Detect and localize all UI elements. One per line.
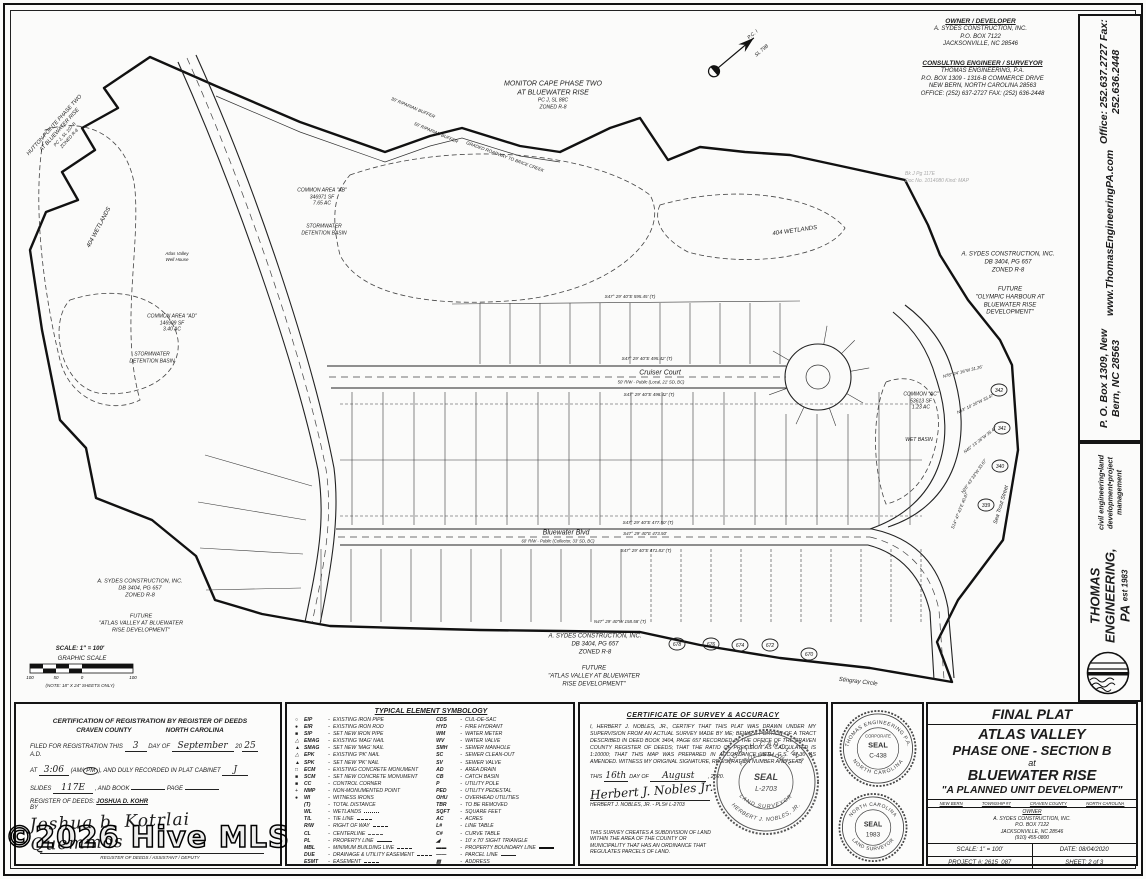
legend-symbol: ▲	[295, 760, 304, 767]
legend-desc: WETLANDS	[333, 809, 361, 816]
legend-desc: PROPERTY BOUNDARY LINE	[465, 845, 536, 852]
legend-desc: EXISTING IRON PIPE	[333, 717, 384, 724]
legend-entry: ▨-ADDRESS	[436, 859, 567, 866]
bluewater-rw-label: 60' R/W - Public (Collector, 33' SD, BC)	[521, 538, 594, 543]
future-atlas-label-left: FUTURE"ATLAS VALLEY AT BLUEWATERRISE DEV…	[99, 613, 183, 634]
certificate-footer: THIS SURVEY CREATES A SUBDIVISION OF LAN…	[590, 830, 720, 856]
legend-abbr: WV	[436, 738, 457, 745]
common-ac-label: COMMON "AC"53613 SF1.23 AC	[903, 391, 938, 411]
legend-desc: SEWER VALVE	[465, 760, 501, 767]
legend-abbr: SMAG	[304, 745, 325, 752]
legend-abbr: EIR	[304, 724, 325, 731]
legend-symbol: ■	[295, 781, 304, 788]
legend-abbr: DUE	[304, 852, 325, 859]
sydes-parcel-label-right: A. SYDES CONSTRUCTION, INC.DB 3404, PG 6…	[961, 251, 1054, 274]
parcel-line	[841, 340, 854, 353]
legend-abbr: SPK	[304, 760, 325, 767]
legend-separator: -	[325, 859, 333, 866]
legend-desc: WATER METER	[465, 731, 502, 738]
legend-separator: -	[457, 788, 465, 795]
legend-separator: -	[457, 724, 465, 731]
legend-separator: -	[457, 831, 465, 838]
legend-desc: RIGHT OF WAY	[333, 823, 370, 830]
symbology-legend-block: TYPICAL ELEMENT SYMBOLOGY ○EIP-EXISTING …	[285, 702, 575, 866]
lot-number: 339	[982, 503, 991, 509]
cruiser-bearing-top: S47° 29' 40"E 495.42' (T)	[622, 356, 673, 362]
registration-recorded-line: AT 3:06 (AM/PM), AND DULY RECORDED IN PL…	[30, 765, 270, 776]
legend-entry: ○EIP-EXISTING IRON PIPE	[295, 717, 432, 724]
title-block: FINAL PLAT ATLAS VALLEY PHASE ONE - SECT…	[926, 702, 1138, 866]
legend-separator: -	[325, 781, 333, 788]
legend-desc: LINE TABLE	[465, 823, 494, 830]
legend-desc: TIE LINE	[333, 816, 354, 823]
legend-abbr: ▬▬	[436, 845, 457, 852]
legend-abbr: CDS	[436, 717, 457, 724]
legend-desc: EXISTING CONCRETE MONUMENT	[333, 767, 418, 774]
legend-title: TYPICAL ELEMENT SYMBOLOGY	[295, 708, 567, 715]
curve-bearing-label: N63° 10' 20"W 33.47'	[956, 392, 995, 414]
legend-separator: -	[457, 731, 465, 738]
cul-de-sac	[785, 344, 851, 410]
parcel-line	[205, 455, 312, 486]
legend-desc: EASEMENT	[333, 859, 361, 866]
legend-desc: CATCH BASIN	[465, 774, 499, 781]
future-olympic-label: FUTURE"OLYMPIC HARBOUR AT BLUEWATER RISE…	[976, 286, 1045, 317]
legend-line-sample	[397, 848, 412, 849]
legend-desc: SET NEW CONCRETE MONUMENT	[333, 774, 418, 781]
legend-symbol: ■	[295, 731, 304, 738]
cruiser-rw-label: 50' R/W - Public (Local, 21' SD, BC)	[618, 379, 685, 384]
registration-title: CERTIFICATION OF REGISTRATION BY REGISTE…	[30, 718, 270, 725]
legend-entry: TBR-TO BE REMOVED	[436, 802, 567, 809]
legend-separator: -	[457, 717, 465, 724]
legend-entry: T/L-TIE LINE	[295, 816, 432, 823]
legend-entry: △EPK-EXISTING 'PK' NAIL	[295, 752, 432, 759]
legend-entry: WL-WETLANDS	[295, 809, 432, 816]
graphic-scale-caption: GRAPHIC SCALE	[58, 656, 107, 664]
legend-abbr: L#	[436, 823, 457, 830]
legend-separator: -	[457, 859, 465, 866]
legend-separator: -	[325, 809, 333, 816]
legend-entry: AD-AREA DRAIN	[436, 767, 567, 774]
legend-entry: ■CC-CONTROL CORNER	[295, 781, 432, 788]
legend-desc: MINIMUM BUILDING LINE	[333, 845, 394, 852]
svg-text:NORTH CAROLINA: NORTH CAROLINA	[848, 802, 898, 819]
consulting-engineer-block: CONSULTING ENGINEER / SURVEYOR THOMAS EN…	[880, 60, 1085, 98]
title-name-2: PHASE ONE - SECTION B	[928, 743, 1136, 758]
legend-separator: -	[325, 774, 333, 781]
sidebar-firm-box: THOMAS ENGINEERING, PA est 1983 civil en…	[1078, 442, 1142, 702]
legend-abbr: EIP	[304, 717, 325, 724]
legend-desc: UTILITY POLE	[465, 781, 499, 788]
parcel-line	[206, 588, 301, 590]
legend-symbol: ●	[295, 795, 304, 802]
legend-abbr: CL	[304, 831, 325, 838]
legend-separator: -	[457, 823, 465, 830]
survey-certificate-block: CERTIFICATE OF SURVEY & ACCURACY I, HERB…	[578, 702, 828, 866]
future-atlas-label-bottom: FUTURE"ATLAS VALLEY AT BLUEWATERRISE DEV…	[548, 665, 640, 688]
certificate-title: CERTIFICATE OF SURVEY & ACCURACY	[590, 712, 816, 719]
parcel-line	[200, 548, 303, 554]
legend-line-sample	[373, 826, 388, 827]
plat-sheet: 342341340339678676674672670N78° 24' 16"W…	[0, 0, 1146, 879]
legend-entry: SC-SEWER CLEAN-OUT	[436, 752, 567, 759]
lot-number: 341	[998, 426, 1007, 432]
sidebar-firm-text: THOMAS ENGINEERING, PA est 1983 civil en…	[1080, 444, 1140, 648]
legend-abbr: ESMT	[304, 859, 325, 866]
legend-entry: ●WI-WITNESS IRONS	[295, 795, 432, 802]
title-sheet: SHEET: 2 of 3	[1033, 857, 1137, 869]
legend-abbr: C#	[436, 831, 457, 838]
legend-entry: ▲SMAG-SET NEW 'MAG' NAIL	[295, 745, 432, 752]
sea-trout-road	[888, 305, 961, 527]
firm-tagline: civil engineering•land development•proje…	[1097, 444, 1124, 541]
legend-desc: TO BE REMOVED	[465, 802, 507, 809]
legend-entry: □ECM-EXISTING CONCRETE MONUMENT	[295, 767, 432, 774]
legend-separator: -	[457, 802, 465, 809]
legend-separator: -	[457, 774, 465, 781]
legend-abbr: EPK	[304, 752, 325, 759]
legend-desc: WITNESS IRONS	[333, 795, 374, 802]
top-band-bearing: S47° 29' 40"E 595.45' (T)	[605, 294, 656, 300]
legend-desc: EXISTING IRON ROD	[333, 724, 384, 731]
registration-state: NORTH CAROLINA	[166, 727, 224, 734]
title-name-1: ATLAS VALLEY	[928, 727, 1136, 743]
registration-filed-line: FILED FOR REGISTRATION THIS 3 DAY OF Sep…	[30, 741, 270, 758]
parcel-line	[829, 408, 835, 426]
legend-line-sample	[417, 855, 432, 856]
legend-entry: L#-LINE TABLE	[436, 823, 567, 830]
legend-desc: PARCEL LINE	[465, 852, 498, 859]
legend-entry: +NMP-NON-MONUMENTED POINT	[295, 788, 432, 795]
legend-entry: PL-PROPERTY LINE	[295, 838, 432, 845]
legend-separator: -	[325, 795, 333, 802]
legend-abbr: SV	[436, 760, 457, 767]
legend-entry: P-UTILITY POLE	[436, 781, 567, 788]
stormwater-basin-label-2: STORMWATERDETENTION BASIN	[129, 352, 174, 365]
legend-line-sample	[539, 847, 554, 849]
legend-entry: MBL-MINIMUM BUILDING LINE	[295, 845, 432, 852]
legend-desc: EXISTING 'MAG' NAIL	[333, 738, 384, 745]
legend-desc: WATER VALVE	[465, 738, 500, 745]
legend-desc: NON-MONUMENTED POINT	[333, 788, 400, 795]
legend-symbol: ○	[295, 717, 304, 724]
title-owner-block: OWNER A. SYDES CONSTRUCTION, INC. P.O. B…	[928, 808, 1136, 844]
legend-abbr: CB	[436, 774, 457, 781]
legend-abbr: ▨	[436, 859, 457, 866]
legend-abbr: SIP	[304, 731, 325, 738]
legend-desc: DRAINAGE & UTILITY EASEMENT	[333, 852, 414, 859]
legend-desc: SET NEW 'MAG' NAIL	[333, 745, 384, 752]
lot-number: 670	[805, 652, 814, 658]
legend-abbr: T/L	[304, 816, 325, 823]
well-house-label: Atlas ValleyWell House	[165, 251, 188, 263]
wet-basin-label: WET BASIN	[905, 437, 933, 444]
legend-abbr: SQFT	[436, 809, 457, 816]
scale-note: (NOTE: 18" X 24" SHEETS ONLY)	[45, 683, 114, 689]
legend-line-sample	[364, 812, 379, 813]
scale-tick-label: 100	[26, 675, 34, 680]
parcel-line	[847, 394, 863, 404]
legend-separator: -	[457, 760, 465, 767]
bluewater-bearing-bottom: S47° 29' 40"E 471.83' (T)	[621, 548, 672, 554]
legend-separator: -	[325, 823, 333, 830]
stormwater-basin-label-1: STORMWATERDETENTION BASIN	[301, 224, 346, 237]
legend-entry: CB-CATCH BASIN	[436, 774, 567, 781]
legend-abbr: TBR	[436, 802, 457, 809]
svg-text:C-438: C-438	[869, 752, 887, 759]
recording-stamp: Bk J Pg 117E Doc No. 1014080 Kind: MAP	[905, 171, 969, 184]
legend-separator: -	[325, 831, 333, 838]
legend-entry: ▲SPK-SET NEW 'PK' NAIL	[295, 760, 432, 767]
bluewater-bearing-top: S47° 29' 40"E 477.50' (T)	[623, 520, 674, 526]
svg-text:LAND SURVEYOR: LAND SURVEYOR	[850, 837, 895, 852]
legend-entry: SQFT-SQUARE FEET	[436, 809, 567, 816]
legend-symbol: +	[295, 788, 304, 795]
title-at: at	[928, 758, 1136, 768]
legend-entry: SMH-SEWER MANHOLE	[436, 745, 567, 752]
title-location-row: NEW BERNTOWNSHIP #7 CRAVEN COUNTYNORTH C…	[928, 800, 1136, 808]
legend-separator: -	[457, 816, 465, 823]
title-project: PROJECT #: 2615_087	[928, 857, 1033, 869]
scale-text: SCALE: 1" = 100'	[56, 646, 104, 654]
lot-number: 672	[766, 643, 775, 649]
street-cruiser-court: Cruiser Court	[639, 368, 681, 377]
sydes-parcel-label-bottom: A. SYDES CONSTRUCTION, INC.DB 3404, PG 6…	[548, 633, 641, 656]
legend-entry: ■SIP-SET NEW IRON PIPE	[295, 731, 432, 738]
parcel-line	[773, 351, 789, 361]
curve-bearing-label: N26° 43' 33"W 33.67'	[960, 458, 988, 494]
svg-text:LAND SURVEYOR: LAND SURVEYOR	[738, 793, 794, 810]
legend-separator: -	[325, 838, 333, 845]
legend-separator: -	[457, 852, 465, 859]
legend-desc: SET NEW 'PK' NAIL	[333, 760, 379, 767]
legend-symbol: ▲	[295, 745, 304, 752]
legend-entry: SV-SEWER VALVE	[436, 760, 567, 767]
legend-abbr: OHU	[436, 795, 457, 802]
legend-line-sample	[357, 819, 372, 820]
legend-separator: -	[457, 845, 465, 852]
legend-separator: -	[325, 731, 333, 738]
svg-text:SEAL: SEAL	[863, 821, 881, 828]
legend-entry: WM-WATER METER	[436, 731, 567, 738]
svg-text:CORPORATE: CORPORATE	[865, 734, 891, 739]
west-road-edge	[178, 62, 321, 622]
legend-abbr: WL	[304, 809, 325, 816]
legend-abbr: NMP	[304, 788, 325, 795]
lot-number: 340	[996, 464, 1005, 470]
legend-abbr: AD	[436, 767, 457, 774]
legend-right-column: CDS-CUL-DE-SACHYD-FIRE HYDRANTWM-WATER M…	[436, 717, 567, 866]
legend-abbr: SCM	[304, 774, 325, 781]
scale-tick-label: 0	[81, 675, 84, 680]
legend-entry: ■SCM-SET NEW CONCRETE MONUMENT	[295, 774, 432, 781]
legend-entry: ◢-10' x 70' SIGHT TRIANGLE	[436, 838, 567, 845]
lot-number: 342	[995, 388, 1004, 394]
title-pud: "A PLANNED UNIT DEVELOPMENT"	[928, 784, 1136, 796]
legend-abbr: (T)	[304, 802, 325, 809]
curve-bearing-label: N78° 24' 16"W 31.26'	[942, 364, 983, 379]
bluewater-bearing-mid: S47° 29' 40"E 473.50'	[623, 531, 667, 537]
legend-abbr: SMH	[436, 745, 457, 752]
firm-logo-icon	[1085, 650, 1131, 696]
legend-entry: C#-CURVE TABLE	[436, 831, 567, 838]
legend-desc: CURVE TABLE	[465, 831, 500, 838]
legend-entry: HYD-FIRE HYDRANT	[436, 724, 567, 731]
legend-abbr: CC	[304, 781, 325, 788]
legend-abbr: EMAG	[304, 738, 325, 745]
legend-desc: SQUARE FEET	[465, 809, 501, 816]
legend-entry: DUE-DRAINAGE & UTILITY EASEMENT	[295, 852, 432, 859]
legend-symbol: △	[295, 738, 304, 745]
legend-line-sample	[364, 862, 379, 863]
legend-line-sample	[501, 855, 516, 856]
legend-left-column: ○EIP-EXISTING IRON PIPE●EIR-EXISTING IRO…	[295, 717, 432, 866]
legend-desc: CENTERLINE	[333, 831, 365, 838]
corporate-seal: THOMAS ENGINEERING P.A. NORTH CAROLINA C…	[837, 708, 919, 789]
legend-desc: ACRES	[465, 816, 483, 823]
legend-entry: R/W-RIGHT OF WAY	[295, 823, 432, 830]
legend-separator: -	[325, 745, 333, 752]
seals-block: THOMAS ENGINEERING P.A. NORTH CAROLINA C…	[831, 702, 924, 866]
graphic-scale-bar	[30, 664, 133, 673]
hive-mls-watermark: ©2026 Hive MLS	[5, 820, 290, 854]
legend-abbr: HYD	[436, 724, 457, 731]
legend-separator: -	[457, 745, 465, 752]
common-area-ab-label: COMMON AREA "AB"346971 SF7.65 AC	[297, 187, 347, 207]
title-date: DATE: 08/04/2020	[1033, 844, 1137, 856]
legend-separator: -	[457, 781, 465, 788]
scale-tick-label: 50	[53, 675, 59, 680]
legend-abbr: WI	[304, 795, 325, 802]
legend-abbr: R/W	[304, 823, 325, 830]
cruiser-bearing-bottom: S47° 29' 40"E 498.42' (T)	[624, 392, 675, 398]
legend-separator: -	[457, 838, 465, 845]
legend-desc: SEWER MANHOLE	[465, 745, 510, 752]
svg-text:SEAL: SEAL	[868, 740, 888, 749]
lot-number: 676	[707, 642, 716, 648]
legend-separator: -	[457, 795, 465, 802]
legend-entry: ESMT-EASEMENT	[295, 859, 432, 866]
legend-separator: -	[325, 802, 333, 809]
legend-abbr: ——	[436, 852, 457, 859]
legend-separator: -	[325, 717, 333, 724]
title-final-plat: FINAL PLAT	[928, 704, 1136, 725]
legend-abbr: MBL	[304, 845, 325, 852]
legend-symbol: ■	[295, 774, 304, 781]
legend-entry: (T)-TOTAL DISTANCE	[295, 802, 432, 809]
legend-entry: △EMAG-EXISTING 'MAG' NAIL	[295, 738, 432, 745]
surveyor-seal: NORTH CAROLINA PROFESSIONAL LAND SURVEYO…	[710, 726, 822, 838]
legend-symbol: ●	[295, 724, 304, 731]
parcel-line	[824, 326, 827, 345]
legend-desc: CONTROL CORNER	[333, 781, 381, 788]
legend-desc: TOTAL DISTANCE	[333, 802, 376, 809]
legend-entry: WV-WATER VALVE	[436, 738, 567, 745]
legend-abbr: WM	[436, 731, 457, 738]
parcel-line	[850, 368, 869, 371]
surveyor-1983-seal: NORTH CAROLINA LAND SURVEYOR SEAL 1983	[836, 791, 910, 864]
legend-desc: CUL-DE-SAC	[465, 717, 496, 724]
registration-slides-line: SLIDES 117E , AND BOOK PAGE	[30, 783, 270, 794]
legend-separator: -	[457, 738, 465, 745]
legend-abbr: PED	[436, 788, 457, 795]
svg-text:SEAL: SEAL	[754, 772, 778, 782]
legend-abbr: SC	[436, 752, 457, 759]
legend-separator: -	[325, 767, 333, 774]
legend-separator: -	[325, 724, 333, 731]
firm-est: est 1983	[1121, 570, 1130, 602]
parcel-line	[769, 388, 787, 394]
legend-line-sample	[377, 841, 392, 842]
legend-separator: -	[325, 738, 333, 745]
legend-abbr: ◢	[436, 838, 457, 845]
svg-text:PROFESSIONAL: PROFESSIONAL	[739, 752, 794, 768]
owner-developer-block: OWNER / DEVELOPER A. SYDES CONSTRUCTION,…	[898, 18, 1063, 49]
parcel-line	[796, 407, 804, 424]
legend-desc: ADDRESS	[465, 859, 490, 866]
title-scale: SCALE: 1" = 100'	[928, 844, 1033, 856]
legend-abbr: ECM	[304, 767, 325, 774]
parcel-line	[198, 502, 306, 520]
legend-line-sample	[368, 834, 383, 835]
svg-text:NORTH CAROLINA: NORTH CAROLINA	[850, 758, 904, 776]
legend-abbr: PL	[304, 838, 325, 845]
svg-text:1983: 1983	[865, 831, 880, 838]
legend-separator: -	[457, 752, 465, 759]
legend-separator: -	[325, 760, 333, 767]
lot-number: 674	[736, 643, 745, 649]
legend-entry: AC-ACRES	[436, 816, 567, 823]
legend-entry: CL-CENTERLINE	[295, 831, 432, 838]
adjoiner-monitor-cape: MONITOR CAPE PHASE TWOAT BLUEWATER RISE …	[504, 79, 602, 110]
common-area-ad-label: COMMON AREA "AD"146909 SF3.40 AC	[147, 313, 197, 333]
legend-desc: FIRE HYDRANT	[465, 724, 503, 731]
legend-symbol: □	[295, 767, 304, 774]
registration-signature-caption: REGISTER OF DEEDS / ASSISTANT / DEPUTY	[30, 855, 270, 860]
legend-desc: SET NEW IRON PIPE	[333, 731, 383, 738]
registration-county: CRAVEN COUNTY	[76, 727, 131, 734]
legend-separator: -	[325, 788, 333, 795]
lot-number: 678	[673, 642, 682, 648]
legend-symbol: △	[295, 752, 304, 759]
legend-entry: ●EIR-EXISTING IRON ROD	[295, 724, 432, 731]
legend-desc: 10' x 70' SIGHT TRIANGLE	[465, 838, 528, 845]
legend-desc: SEWER CLEAN-OUT	[465, 752, 515, 759]
scale-tick-label: 100	[129, 675, 137, 680]
sidebar-contact-box: P. O. Box 1309, New Bern, NC 28563 www.T…	[1078, 14, 1142, 442]
svg-text:L-2703: L-2703	[755, 786, 777, 793]
legend-entry: ▬▬-PROPERTY BOUNDARY LINE	[436, 845, 567, 852]
bottom-band-bearing: N47° 29' 40"W 158.58' (T)	[594, 619, 646, 625]
legend-desc: OVERHEAD UTILITIES	[465, 795, 519, 802]
legend-separator: -	[457, 809, 465, 816]
legend-entry: PED-UTILITY PEDESTAL	[436, 788, 567, 795]
legend-separator: -	[325, 845, 333, 852]
title-name-3: BLUEWATER RISE	[928, 768, 1136, 784]
curve-bearing-label: S14° 47' 43"E 40.87'	[950, 491, 969, 529]
legend-desc: AREA DRAIN	[465, 767, 496, 774]
street-bluewater-blvd: Bluewater Blvd	[543, 528, 590, 537]
sydes-parcel-label-left: A. SYDES CONSTRUCTION, INC.DB 3404, PG 6…	[97, 578, 182, 599]
legend-desc: PROPERTY LINE	[333, 838, 374, 845]
legend-separator: -	[325, 816, 333, 823]
legend-entry: CDS-CUL-DE-SAC	[436, 717, 567, 724]
legend-desc: EXISTING 'PK' NAIL	[333, 752, 380, 759]
legend-separator: -	[325, 752, 333, 759]
legend-separator: -	[457, 767, 465, 774]
legend-entry: ——-PARCEL LINE	[436, 852, 567, 859]
